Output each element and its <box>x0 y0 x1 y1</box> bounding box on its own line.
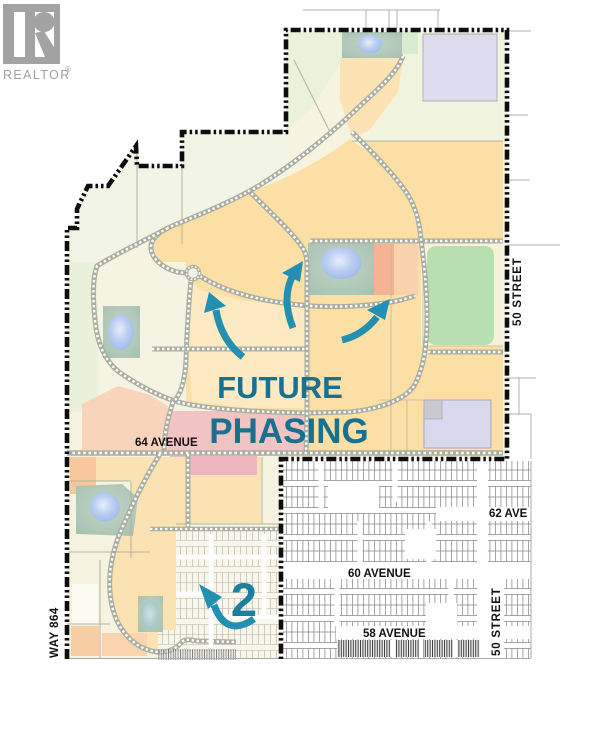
svg-text:64 AVENUE: 64 AVENUE <box>135 437 198 449</box>
svg-text:®: ® <box>65 65 71 74</box>
svg-text:FUTURE: FUTURE <box>217 370 343 405</box>
svg-text:60 AVENUE: 60 AVENUE <box>348 568 411 580</box>
svg-text:50 STREET: 50 STREET <box>491 587 503 656</box>
svg-text:58 AVENUE: 58 AVENUE <box>363 628 426 640</box>
svg-text:50 STREET: 50 STREET <box>512 257 524 326</box>
svg-text:2: 2 <box>231 573 257 626</box>
svg-text:WAY 864: WAY 864 <box>49 607 61 658</box>
svg-text:PHASING: PHASING <box>209 412 368 451</box>
svg-text:REALTOR: REALTOR <box>3 68 71 82</box>
svg-text:62 AVE: 62 AVE <box>489 508 528 520</box>
